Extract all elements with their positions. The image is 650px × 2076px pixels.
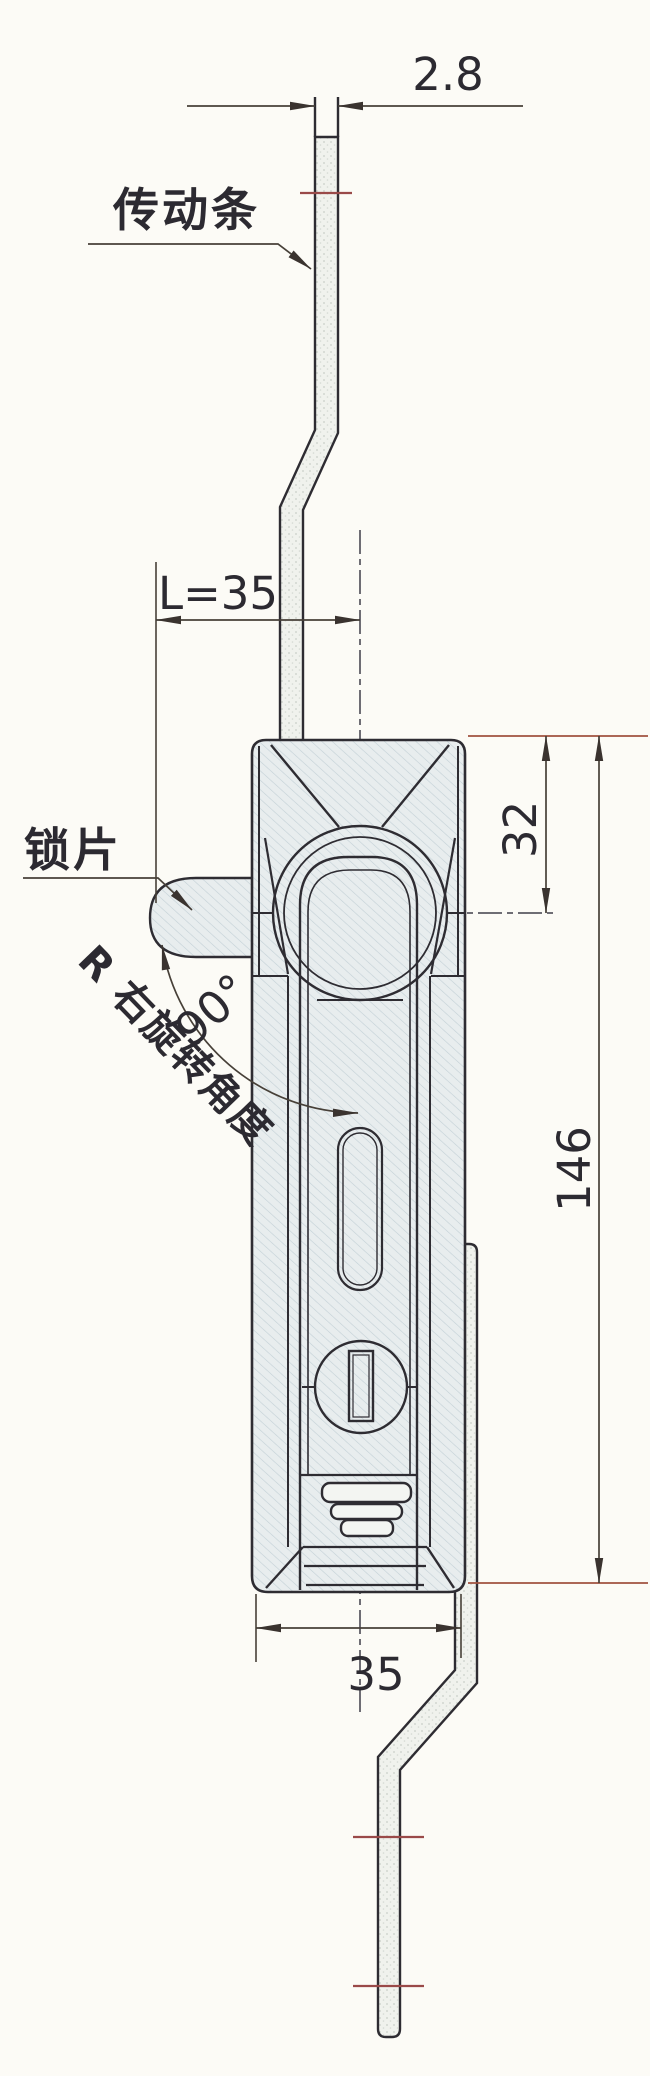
- dim-text-body-height: 146: [548, 1126, 601, 1212]
- transmission-bar-upper: [280, 97, 352, 742]
- step-bar-1: [322, 1483, 411, 1502]
- dim-text-top-to-axis: 32: [494, 801, 547, 858]
- label-transmission-bar: 传动条: [112, 183, 260, 237]
- label-lock-tab: 锁片: [24, 823, 122, 877]
- dim-text-body-width: 35: [347, 1648, 404, 1701]
- technical-drawing-sheet: 2.8 传动条 L=35 锁片 32 146 90° R 右旋转角度 35: [0, 0, 650, 2076]
- dim-text-bar-thickness: 2.8: [412, 48, 484, 101]
- step-bar-3: [341, 1520, 393, 1536]
- leader-transmission-bar: [88, 244, 311, 269]
- dim-text-tab-length: L=35: [158, 567, 278, 620]
- step-bar-2: [331, 1504, 402, 1519]
- rotation-note-text: R 右旋转角度: [69, 937, 282, 1155]
- upper-bar-body: [280, 137, 338, 742]
- lock-body: [252, 740, 465, 1592]
- lock-assembly-drawing: 2.8 传动条 L=35 锁片 32 146 90° R 右旋转角度 35: [0, 0, 650, 2076]
- lock-tab-shape: [150, 878, 256, 957]
